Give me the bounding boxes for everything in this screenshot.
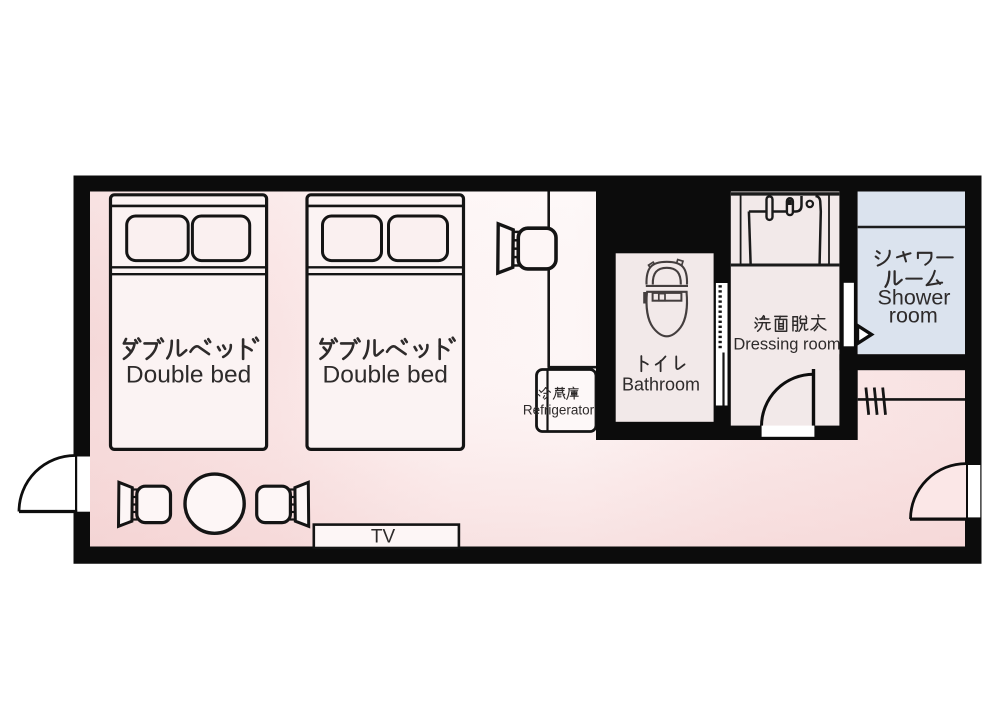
svg-text:Bathroom: Bathroom	[622, 375, 700, 395]
svg-text:Dressing room: Dressing room	[733, 336, 840, 354]
svg-text:Refrigerator: Refrigerator	[523, 403, 595, 418]
svg-text:room: room	[889, 304, 938, 328]
svg-text:Double bed: Double bed	[126, 362, 251, 389]
svg-text:TV: TV	[371, 527, 396, 548]
svg-text:Double bed: Double bed	[323, 362, 448, 389]
